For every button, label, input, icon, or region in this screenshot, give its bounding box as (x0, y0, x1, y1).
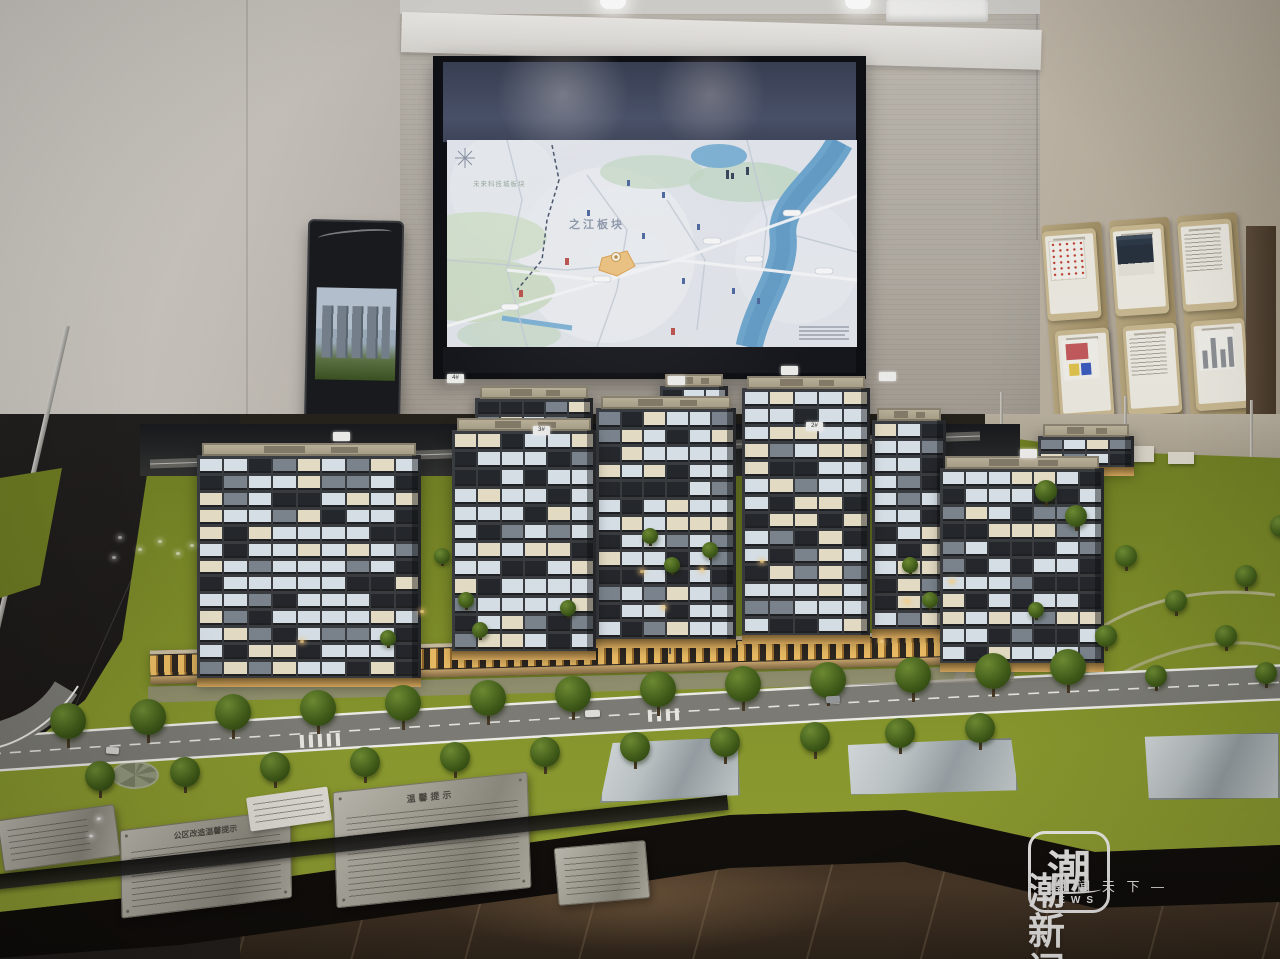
window (200, 577, 222, 591)
floor-glint (138, 548, 142, 551)
window (478, 470, 499, 485)
tree (620, 732, 650, 762)
window (943, 594, 964, 608)
window (622, 465, 643, 480)
window (770, 409, 793, 423)
window (224, 510, 246, 524)
window (298, 510, 320, 524)
window (501, 402, 522, 414)
window (599, 570, 620, 585)
window (224, 527, 246, 541)
tree (50, 703, 86, 739)
window (347, 459, 369, 473)
window (770, 619, 793, 633)
window (622, 430, 643, 445)
window (745, 566, 768, 580)
window (966, 629, 987, 643)
window (599, 552, 620, 567)
window (690, 430, 711, 445)
window (1012, 577, 1033, 591)
window (224, 544, 246, 558)
tree (380, 630, 396, 646)
window (795, 462, 818, 476)
window (371, 662, 393, 676)
window (371, 594, 393, 608)
window (322, 628, 344, 642)
window (525, 489, 546, 504)
window (371, 510, 393, 524)
window (819, 497, 842, 511)
window (371, 561, 393, 575)
window (599, 517, 620, 532)
window (502, 616, 523, 631)
window (298, 645, 320, 659)
window (371, 493, 393, 507)
plaque-glint (89, 834, 93, 838)
tree (1115, 545, 1137, 567)
window (690, 412, 711, 427)
window (1012, 647, 1033, 661)
roof-structure (680, 400, 697, 406)
window (200, 611, 222, 625)
window (455, 507, 476, 522)
window (224, 459, 246, 473)
window (525, 579, 546, 594)
window (599, 482, 620, 497)
window (898, 527, 919, 541)
window (224, 577, 246, 591)
window (599, 500, 620, 515)
window (667, 605, 688, 620)
window (989, 507, 1010, 521)
window (599, 535, 620, 550)
tree (300, 690, 336, 726)
window (455, 489, 476, 504)
roof-structure (331, 447, 358, 453)
window (819, 601, 842, 615)
window (224, 611, 246, 625)
window (322, 459, 344, 473)
model-car (826, 696, 840, 704)
tower-shaded-side (727, 408, 736, 648)
window (322, 544, 344, 558)
tree (555, 676, 591, 712)
window (1012, 489, 1033, 503)
building-number-tag (1020, 449, 1037, 458)
window (770, 584, 793, 598)
window (745, 427, 768, 441)
tree (1028, 602, 1044, 618)
window (644, 587, 665, 602)
window (273, 628, 295, 642)
window (989, 612, 1010, 626)
window (322, 561, 344, 575)
tower-roof (480, 386, 588, 399)
window (770, 444, 793, 458)
window (599, 465, 620, 480)
roof-structure (1038, 460, 1058, 466)
window (298, 476, 320, 490)
window (371, 645, 393, 659)
window (875, 476, 896, 490)
building-number-tag: 4# (447, 374, 464, 383)
window (966, 524, 987, 538)
tree (975, 653, 1011, 689)
window (249, 577, 271, 591)
window (690, 570, 711, 585)
window (347, 577, 369, 591)
window (1057, 629, 1078, 643)
window (502, 452, 523, 467)
window (644, 412, 665, 427)
window (770, 479, 793, 493)
window (347, 527, 369, 541)
window (548, 452, 569, 467)
window (1012, 629, 1033, 643)
tree (1050, 649, 1086, 685)
tree (440, 742, 470, 772)
tree (434, 548, 450, 564)
window (371, 611, 393, 625)
tree (1065, 505, 1087, 527)
window (322, 594, 344, 608)
window (200, 662, 222, 676)
tree (458, 592, 474, 608)
window (966, 559, 987, 573)
window (989, 594, 1010, 608)
tree (902, 557, 918, 573)
window (667, 622, 688, 637)
tree (1095, 625, 1117, 647)
window (795, 584, 818, 598)
window (478, 543, 499, 558)
tree (530, 737, 560, 767)
window (875, 579, 896, 593)
tree (1255, 662, 1277, 684)
window (989, 472, 1010, 486)
window (745, 531, 768, 545)
window (347, 510, 369, 524)
tree (1165, 590, 1187, 612)
window (548, 489, 569, 504)
window (599, 605, 620, 620)
floor-glint (118, 536, 122, 539)
window (1057, 542, 1078, 556)
window (644, 465, 665, 480)
tower-roof (202, 443, 416, 456)
window (745, 444, 768, 458)
window (273, 544, 295, 558)
window (819, 584, 842, 598)
chao-news-watermark: 潮 NEWS 潮新闻 — 潮 闻 天 下 — (1028, 822, 1258, 922)
window (502, 434, 523, 449)
roof-structure (916, 412, 925, 418)
roof-structure (1067, 427, 1084, 434)
window (249, 544, 271, 558)
window (667, 482, 688, 497)
window (795, 601, 818, 615)
window (273, 476, 295, 490)
window (690, 465, 711, 480)
window (1012, 542, 1033, 556)
window (273, 662, 295, 676)
window (200, 645, 222, 659)
window (455, 434, 476, 449)
window (322, 493, 344, 507)
window (966, 472, 987, 486)
window (455, 525, 476, 540)
window (875, 561, 896, 575)
roof-structure (989, 459, 1019, 466)
window (200, 459, 222, 473)
window (1034, 629, 1055, 643)
tower-shaded-side (412, 455, 421, 687)
window (1064, 440, 1085, 451)
tree (472, 622, 488, 638)
window (770, 601, 793, 615)
window (770, 566, 793, 580)
window (690, 447, 711, 462)
window (690, 517, 711, 532)
window (249, 628, 271, 642)
roof-structure (819, 380, 834, 386)
window (548, 470, 569, 485)
window (898, 458, 919, 472)
window (1012, 524, 1033, 538)
window (819, 566, 842, 580)
window (667, 430, 688, 445)
window (249, 561, 271, 575)
window (667, 465, 688, 480)
window (455, 561, 476, 576)
tree (215, 694, 251, 730)
window (371, 577, 393, 591)
tree (642, 528, 658, 544)
window (322, 645, 344, 659)
window (599, 447, 620, 462)
window (943, 559, 964, 573)
window (502, 579, 523, 594)
window (298, 611, 320, 625)
plaque-text-lines (563, 850, 640, 896)
window (298, 594, 320, 608)
tree (810, 662, 846, 698)
window (502, 507, 523, 522)
window (875, 424, 896, 438)
garden-light (760, 560, 764, 563)
tower-roof (601, 396, 731, 409)
window (690, 587, 711, 602)
window (898, 424, 919, 438)
window (875, 613, 896, 627)
tower-roof (457, 418, 591, 431)
window (622, 535, 643, 550)
window (298, 459, 320, 473)
tree (1035, 480, 1057, 502)
window (943, 472, 964, 486)
window-grid (596, 410, 736, 639)
window (322, 662, 344, 676)
brand-tagline: — 潮 闻 天 下 — (1028, 876, 1168, 895)
window (525, 616, 546, 631)
window (644, 447, 665, 462)
tree (170, 757, 200, 787)
window (525, 598, 546, 613)
window (1057, 489, 1078, 503)
window (770, 549, 793, 563)
window (298, 493, 320, 507)
window (200, 561, 222, 575)
window (898, 613, 919, 627)
floor-glint (112, 556, 116, 559)
window (502, 489, 523, 504)
window (322, 476, 344, 490)
window (745, 479, 768, 493)
window (322, 611, 344, 625)
window (898, 510, 919, 524)
window (347, 611, 369, 625)
window (943, 612, 964, 626)
window (1041, 440, 1062, 451)
window (371, 459, 393, 473)
roof-structure (701, 378, 709, 384)
window (770, 514, 793, 528)
tree (1235, 565, 1257, 587)
window (875, 596, 896, 610)
window (298, 577, 320, 591)
window (795, 531, 818, 545)
window (478, 489, 499, 504)
window (249, 510, 271, 524)
window (347, 594, 369, 608)
window (989, 524, 1010, 538)
window (249, 594, 271, 608)
garden-light (950, 580, 954, 583)
window (548, 434, 569, 449)
tower-roof (1043, 424, 1129, 437)
window (273, 594, 295, 608)
window (599, 587, 620, 602)
building-number-tag (879, 372, 896, 381)
window (224, 662, 246, 676)
window (347, 493, 369, 507)
window (478, 579, 499, 594)
window (548, 525, 569, 540)
window (273, 527, 295, 541)
tower-lit-base (197, 678, 421, 687)
mini-building (1168, 452, 1194, 464)
model-tower (940, 468, 1104, 672)
roof-structure (894, 411, 907, 418)
window (644, 430, 665, 445)
window (690, 500, 711, 515)
window (548, 543, 569, 558)
window (770, 462, 793, 476)
window (898, 493, 919, 507)
window (548, 634, 569, 649)
window (989, 542, 1010, 556)
model-car (585, 710, 600, 718)
window (795, 549, 818, 563)
window (745, 549, 768, 563)
window (667, 500, 688, 515)
building-number-tag: 2# (806, 422, 823, 431)
window (224, 628, 246, 642)
tower-lit-base (872, 629, 946, 638)
window (502, 470, 523, 485)
window (875, 493, 896, 507)
floor-glint (190, 544, 194, 547)
plaque-glint (97, 817, 101, 821)
window (525, 525, 546, 540)
plaque-text-lines (7, 817, 91, 862)
window (898, 441, 919, 455)
window (548, 507, 569, 522)
window (249, 476, 271, 490)
window (690, 622, 711, 637)
window (273, 459, 295, 473)
window (644, 570, 665, 585)
garden-light (905, 600, 909, 603)
window (525, 507, 546, 522)
tower-shaded-side (587, 430, 596, 660)
tower-lit-base (742, 635, 870, 644)
tree (560, 600, 576, 616)
window (249, 527, 271, 541)
window (989, 577, 1010, 591)
window (770, 427, 793, 441)
window (200, 476, 222, 490)
window (347, 544, 369, 558)
window (524, 402, 545, 414)
window (273, 645, 295, 659)
window (745, 497, 768, 511)
window (795, 514, 818, 528)
tree (885, 718, 915, 748)
window (943, 577, 964, 591)
window (273, 561, 295, 575)
window (745, 601, 768, 615)
window (622, 622, 643, 637)
tower-lit-base (596, 639, 736, 648)
window (1057, 612, 1078, 626)
window (667, 587, 688, 602)
window (224, 645, 246, 659)
window (622, 552, 643, 567)
garden-light (662, 606, 666, 609)
window (273, 577, 295, 591)
window (478, 507, 499, 522)
tree (1145, 665, 1167, 687)
window (273, 510, 295, 524)
tree (130, 699, 166, 735)
garden-light (300, 640, 304, 643)
window (502, 598, 523, 613)
window (322, 510, 344, 524)
window (622, 447, 643, 462)
window (745, 514, 768, 528)
window (644, 500, 665, 515)
window (455, 470, 476, 485)
tree (710, 727, 740, 757)
window (943, 629, 964, 643)
window (599, 412, 620, 427)
tree (350, 747, 380, 777)
window (644, 552, 665, 567)
window (795, 497, 818, 511)
window (478, 402, 499, 414)
window (347, 561, 369, 575)
